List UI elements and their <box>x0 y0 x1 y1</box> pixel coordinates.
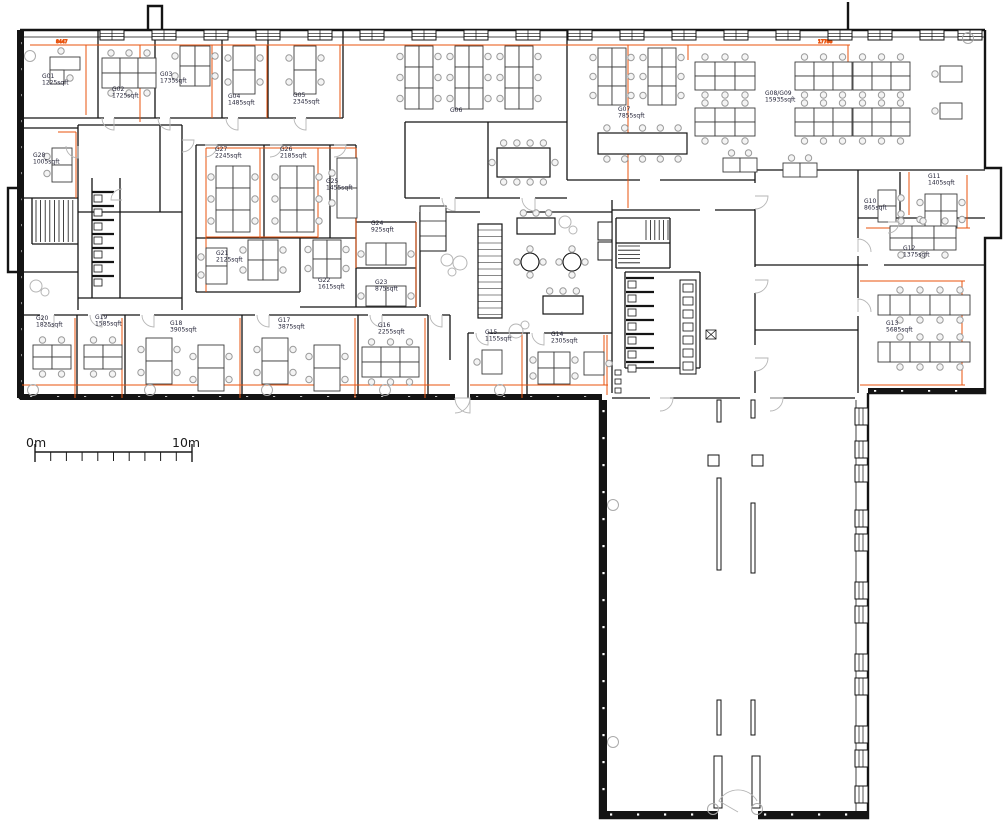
desk <box>362 347 381 362</box>
toilet <box>94 223 102 230</box>
door-arc <box>226 118 238 130</box>
column-square <box>752 455 763 466</box>
chair <box>397 95 403 101</box>
chair <box>226 353 232 359</box>
chair <box>957 334 963 340</box>
meeting-table <box>497 148 550 177</box>
room-area: 1615sqft <box>318 284 345 291</box>
room-area: 1225sqft <box>42 80 69 87</box>
chair <box>406 379 412 385</box>
chair <box>212 73 218 79</box>
chair <box>500 179 506 185</box>
desk <box>297 166 314 188</box>
room-area: 1725sqft <box>112 93 139 100</box>
locker <box>598 222 612 240</box>
chair <box>722 138 728 144</box>
chair <box>306 376 312 382</box>
room-label-g20: G201825sqft <box>36 315 63 329</box>
partition-wall <box>751 503 755 573</box>
desk <box>695 76 715 90</box>
chair <box>514 140 520 146</box>
chair <box>329 200 335 206</box>
chair <box>108 50 114 56</box>
window-dot <box>602 653 604 655</box>
room-area: 875sqft <box>375 286 398 293</box>
chair <box>702 138 708 144</box>
chair <box>640 73 646 79</box>
desk <box>294 70 316 94</box>
room-area: 1735sqft <box>160 78 187 85</box>
chair <box>675 156 681 162</box>
window-mullion <box>855 678 868 695</box>
toilet <box>628 337 636 344</box>
scale-end-label: 10m <box>172 435 200 450</box>
door-arc <box>102 118 114 130</box>
chair <box>728 150 734 156</box>
desk <box>233 166 250 188</box>
room-label-g06: G06 <box>450 107 462 114</box>
chair <box>290 369 296 375</box>
desk <box>400 362 419 377</box>
desk <box>263 240 278 260</box>
room-label-g23: G23875sqft <box>375 279 398 293</box>
window-dot <box>602 707 604 709</box>
chair <box>640 92 646 98</box>
chair <box>639 156 645 162</box>
chair <box>678 92 684 98</box>
room-label-g07: G077855sqft <box>618 106 645 120</box>
room-area: 2245sqft <box>215 153 242 160</box>
plant <box>559 216 571 228</box>
chair <box>485 74 491 80</box>
chair <box>44 170 50 176</box>
chair <box>272 196 278 202</box>
room-area: 1825sqft <box>36 322 63 329</box>
chair <box>225 55 231 61</box>
plant <box>453 256 467 270</box>
partition-wall <box>717 478 721 570</box>
chair <box>820 54 826 60</box>
chair <box>368 339 374 345</box>
chair <box>878 138 884 144</box>
desk <box>795 122 814 136</box>
desk <box>469 88 483 109</box>
desk <box>405 88 419 109</box>
desk <box>662 67 676 86</box>
chair <box>406 339 412 345</box>
desk <box>455 67 469 88</box>
toilet <box>94 279 102 286</box>
chair <box>535 53 541 59</box>
chair <box>447 95 453 101</box>
toilet <box>628 323 636 330</box>
desk <box>833 122 852 136</box>
desk <box>941 194 957 211</box>
desk <box>878 342 890 362</box>
window-dot <box>602 437 604 439</box>
desk <box>912 238 934 250</box>
chair <box>252 196 258 202</box>
chair <box>329 170 335 176</box>
window-mullion <box>855 786 868 803</box>
chair <box>447 53 453 59</box>
chair <box>742 138 748 144</box>
chair <box>252 174 258 180</box>
structural-column <box>608 737 619 748</box>
room-label-g17: G173875sqft <box>278 317 305 331</box>
toilet <box>94 265 102 272</box>
room-label-g04: G041485sqft <box>228 93 255 107</box>
desk <box>216 188 233 210</box>
desk <box>795 76 814 90</box>
chair <box>702 54 708 60</box>
chair <box>489 159 495 165</box>
room-area: 1585sqft <box>95 321 122 328</box>
desk <box>233 210 250 232</box>
desk <box>695 108 715 122</box>
chair <box>318 79 324 85</box>
chair <box>138 369 144 375</box>
door-arc <box>755 358 768 371</box>
chair <box>590 54 596 60</box>
chair <box>628 92 634 98</box>
desk <box>138 73 156 88</box>
urinal <box>615 370 621 375</box>
desk <box>313 240 327 259</box>
window-dot <box>602 599 604 601</box>
room-area: 925sqft <box>371 227 394 234</box>
desk <box>910 295 930 315</box>
room-label-g21: G212125sqft <box>216 250 243 264</box>
chair <box>408 293 414 299</box>
desk <box>262 338 288 361</box>
floor-plan-page: 8447 17786 G011225sqftG021725sqftG031735… <box>0 0 1007 833</box>
chair <box>368 379 374 385</box>
chair <box>878 92 884 98</box>
partition-wall <box>751 700 755 735</box>
room-area: 1455sqft <box>326 185 353 192</box>
desk <box>872 108 891 122</box>
desk <box>469 46 483 67</box>
chair <box>742 100 748 106</box>
chair <box>306 353 312 359</box>
desk <box>853 76 872 90</box>
desk <box>280 166 297 188</box>
toilet <box>94 209 102 216</box>
desk <box>853 122 872 136</box>
window-mullion <box>855 441 868 458</box>
chair <box>917 199 923 205</box>
desk <box>519 67 533 88</box>
desk <box>455 46 469 67</box>
chair <box>485 53 491 59</box>
desk <box>662 48 676 67</box>
chair <box>174 369 180 375</box>
desk <box>695 62 715 76</box>
door-arc <box>660 398 673 411</box>
desk <box>419 46 433 67</box>
chair <box>942 218 948 224</box>
desk <box>735 108 755 122</box>
desk <box>381 362 400 377</box>
chair <box>839 100 845 106</box>
chair <box>897 364 903 370</box>
desk <box>695 122 715 136</box>
chair <box>932 71 938 77</box>
door-arc <box>532 333 544 345</box>
plant <box>441 254 453 266</box>
chair <box>959 216 965 222</box>
chair <box>485 95 491 101</box>
wing-partitions <box>708 400 763 808</box>
scale-bar: 0m 10m <box>26 435 200 462</box>
chair <box>957 287 963 293</box>
window-dot <box>637 813 639 815</box>
desk <box>930 295 950 315</box>
chair <box>917 317 923 323</box>
chair <box>514 179 520 185</box>
chair <box>898 195 904 201</box>
chair <box>917 364 923 370</box>
room-area: 1155sqft <box>485 336 512 343</box>
door-arc <box>430 315 442 327</box>
desk <box>554 352 570 368</box>
chair <box>358 293 364 299</box>
chair <box>387 379 393 385</box>
desk <box>180 46 195 66</box>
sink <box>683 284 693 292</box>
plant <box>521 321 529 329</box>
chair <box>742 54 748 60</box>
door-arc <box>334 145 346 157</box>
round-table <box>563 253 581 271</box>
chair <box>212 53 218 59</box>
desk <box>386 243 406 265</box>
desk <box>216 166 233 188</box>
desk <box>735 76 755 90</box>
chair <box>937 364 943 370</box>
room-area: 15935sqft <box>765 97 796 104</box>
window-mullion <box>855 726 868 743</box>
chair <box>530 357 536 363</box>
desk <box>934 238 956 250</box>
chair <box>435 53 441 59</box>
chair <box>280 267 286 273</box>
chair <box>628 73 634 79</box>
chair <box>198 272 204 278</box>
sink <box>683 310 693 318</box>
room-area: 865sqft <box>864 205 887 212</box>
chair <box>606 360 612 366</box>
window-dot <box>764 813 766 815</box>
room-area: 5685sqft <box>886 327 913 334</box>
chair <box>657 156 663 162</box>
partition-wall <box>717 700 721 735</box>
chair <box>387 339 393 345</box>
window-mullion <box>855 606 868 623</box>
chair <box>530 373 536 379</box>
chair <box>722 100 728 106</box>
desk <box>740 158 757 172</box>
shelving <box>478 224 502 318</box>
chair <box>272 174 278 180</box>
desk <box>400 347 419 362</box>
chair <box>820 92 826 98</box>
desk <box>872 76 891 90</box>
desk <box>280 210 297 232</box>
chair <box>801 100 807 106</box>
desk <box>783 163 800 177</box>
structural-column <box>608 500 619 511</box>
desk <box>735 122 755 136</box>
chair <box>573 288 579 294</box>
sink <box>683 349 693 357</box>
structural-column <box>25 51 36 62</box>
chair <box>569 272 575 278</box>
desk <box>313 259 327 278</box>
desk <box>925 211 941 228</box>
desk <box>248 260 263 280</box>
chair <box>657 125 663 131</box>
desk <box>814 108 833 122</box>
desk <box>795 108 814 122</box>
toilet <box>628 281 636 288</box>
desk <box>103 357 122 369</box>
chair <box>859 92 865 98</box>
room-area: 1005sqft <box>33 159 60 166</box>
desk <box>800 163 817 177</box>
desk <box>940 103 962 119</box>
locker <box>598 242 612 260</box>
window-mullion <box>855 582 868 599</box>
chair <box>897 287 903 293</box>
desk <box>337 158 357 188</box>
chair <box>897 54 903 60</box>
chair <box>540 259 546 265</box>
chair <box>286 79 292 85</box>
desk <box>263 260 278 280</box>
desk <box>519 46 533 67</box>
chair <box>745 150 751 156</box>
chair <box>622 156 628 162</box>
chair <box>316 174 322 180</box>
chair <box>318 55 324 61</box>
chair <box>560 288 566 294</box>
urinal <box>615 379 621 384</box>
toilet <box>94 237 102 244</box>
door-arc <box>755 280 768 293</box>
desk <box>102 58 120 73</box>
chair <box>138 346 144 352</box>
chair <box>801 138 807 144</box>
toilet <box>628 295 636 302</box>
chair <box>39 337 45 343</box>
structural-column <box>28 385 39 396</box>
window-mullions <box>100 30 982 803</box>
room-area: 3875sqft <box>278 324 305 331</box>
chair <box>540 179 546 185</box>
door-arc <box>755 196 768 209</box>
desk <box>233 188 250 210</box>
chair <box>582 259 588 265</box>
chair <box>920 218 926 224</box>
room-label-g19: G191585sqft <box>95 314 122 328</box>
chair <box>408 251 414 257</box>
desk <box>482 350 502 374</box>
chair <box>254 346 260 352</box>
desk <box>554 368 570 384</box>
chair <box>722 54 728 60</box>
desk <box>872 122 891 136</box>
structural-column <box>495 385 506 396</box>
scale-start-label: 0m <box>26 435 46 450</box>
window-mullion <box>855 534 868 551</box>
room-area: 3905sqft <box>170 327 197 334</box>
desk <box>912 226 934 238</box>
floor-plan-svg: 8447 17786 G011225sqftG021725sqftG031735… <box>0 0 1007 833</box>
chair <box>859 54 865 60</box>
desk <box>362 362 381 377</box>
round-table <box>521 253 539 271</box>
chair <box>240 267 246 273</box>
desk <box>930 342 950 362</box>
desk <box>103 345 122 357</box>
desk <box>833 76 852 90</box>
chair <box>144 90 150 96</box>
desk <box>419 88 433 109</box>
window-dot <box>602 491 604 493</box>
chair <box>742 92 748 98</box>
toilet <box>628 351 636 358</box>
room-area: 1485sqft <box>228 100 255 107</box>
desk <box>84 357 103 369</box>
desk <box>337 188 357 218</box>
chair <box>569 246 575 252</box>
window-mullion <box>855 750 868 767</box>
desk <box>419 67 433 88</box>
desk <box>280 188 297 210</box>
desk <box>715 108 735 122</box>
chair <box>109 337 115 343</box>
window-mullion <box>855 510 868 527</box>
plant <box>569 226 577 234</box>
desk <box>925 194 941 211</box>
desk <box>814 122 833 136</box>
window-dot <box>818 813 820 815</box>
chair <box>58 371 64 377</box>
desk <box>940 66 962 82</box>
chair <box>932 108 938 114</box>
desk <box>216 210 233 232</box>
chair <box>639 125 645 131</box>
chair <box>90 337 96 343</box>
column-square <box>708 455 719 466</box>
desk <box>891 76 910 90</box>
chair <box>527 246 533 252</box>
chair <box>305 265 311 271</box>
desk <box>455 88 469 109</box>
window-dot <box>691 813 693 815</box>
chair <box>497 53 503 59</box>
room-label-g16: G162255sqft <box>378 322 405 336</box>
window-dot <box>602 464 604 466</box>
chair <box>590 73 596 79</box>
chair <box>174 346 180 352</box>
desk <box>598 67 612 86</box>
desk <box>612 67 626 86</box>
chair <box>286 55 292 61</box>
chair <box>546 288 552 294</box>
